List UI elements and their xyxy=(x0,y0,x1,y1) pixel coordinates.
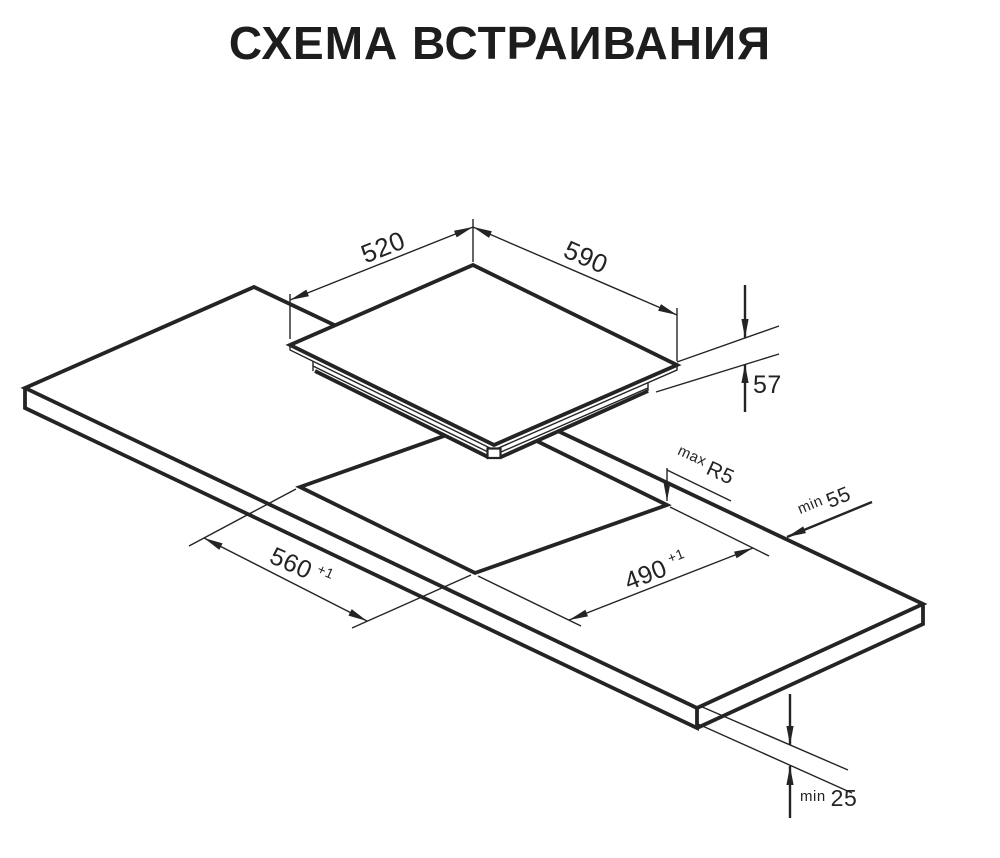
dim-corner-radius-label: maxR5 xyxy=(672,442,738,489)
dim-under-clearance: min25 xyxy=(698,694,857,818)
dim-cutout-width-label: 560+1 xyxy=(266,541,337,594)
dim-rear-clearance-label: min55 xyxy=(795,481,854,524)
dim-hob-height: 57 xyxy=(656,285,782,412)
hob-chassis-corner-box xyxy=(488,449,501,459)
dim-hob-depth-label: 520 xyxy=(357,225,410,269)
dim-hob-height-label: 57 xyxy=(753,371,782,399)
dim-rear-clearance: min55 xyxy=(787,481,872,537)
installation-diagram: 520 590 57 maxR5 xyxy=(0,0,1000,858)
page: СХЕМА ВСТРАИВАНИЯ xyxy=(0,0,1000,858)
dim-under-clearance-label: min25 xyxy=(800,785,857,811)
dim-hob-width-label: 590 xyxy=(559,234,612,279)
dim-under-clearance-extensions xyxy=(698,706,852,793)
